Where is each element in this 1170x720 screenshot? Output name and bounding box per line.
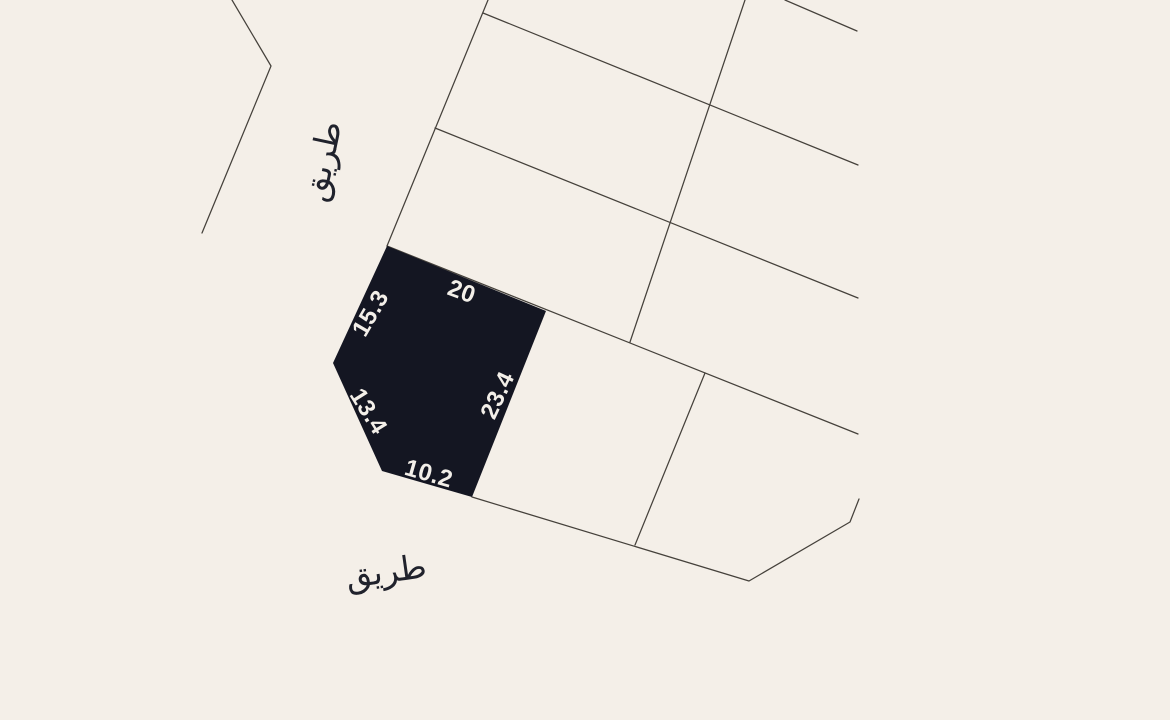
road-label-bottom: طريق [343, 546, 429, 597]
parcel-divider-column-1 [630, 0, 745, 342]
road-boundary-bottom [472, 497, 859, 581]
road-boundary-upper-left [202, 0, 271, 233]
parcel-divider-column-2 [635, 373, 705, 545]
parcel-map-svg: 20 15.3 13.4 23.4 10.2 طريق طريق [0, 0, 1170, 720]
block-boundary-left [387, 0, 488, 246]
parcel-divider-top-right [785, 0, 857, 31]
road-label-top: طريق [295, 117, 351, 205]
parcel-divider-row-1 [483, 13, 858, 165]
parcel-divider-row-2 [435, 128, 858, 298]
selected-plot-polygon[interactable] [333, 246, 546, 497]
parcel-map: 20 15.3 13.4 23.4 10.2 طريق طريق [0, 0, 1170, 720]
boundary-lines [202, 0, 859, 581]
